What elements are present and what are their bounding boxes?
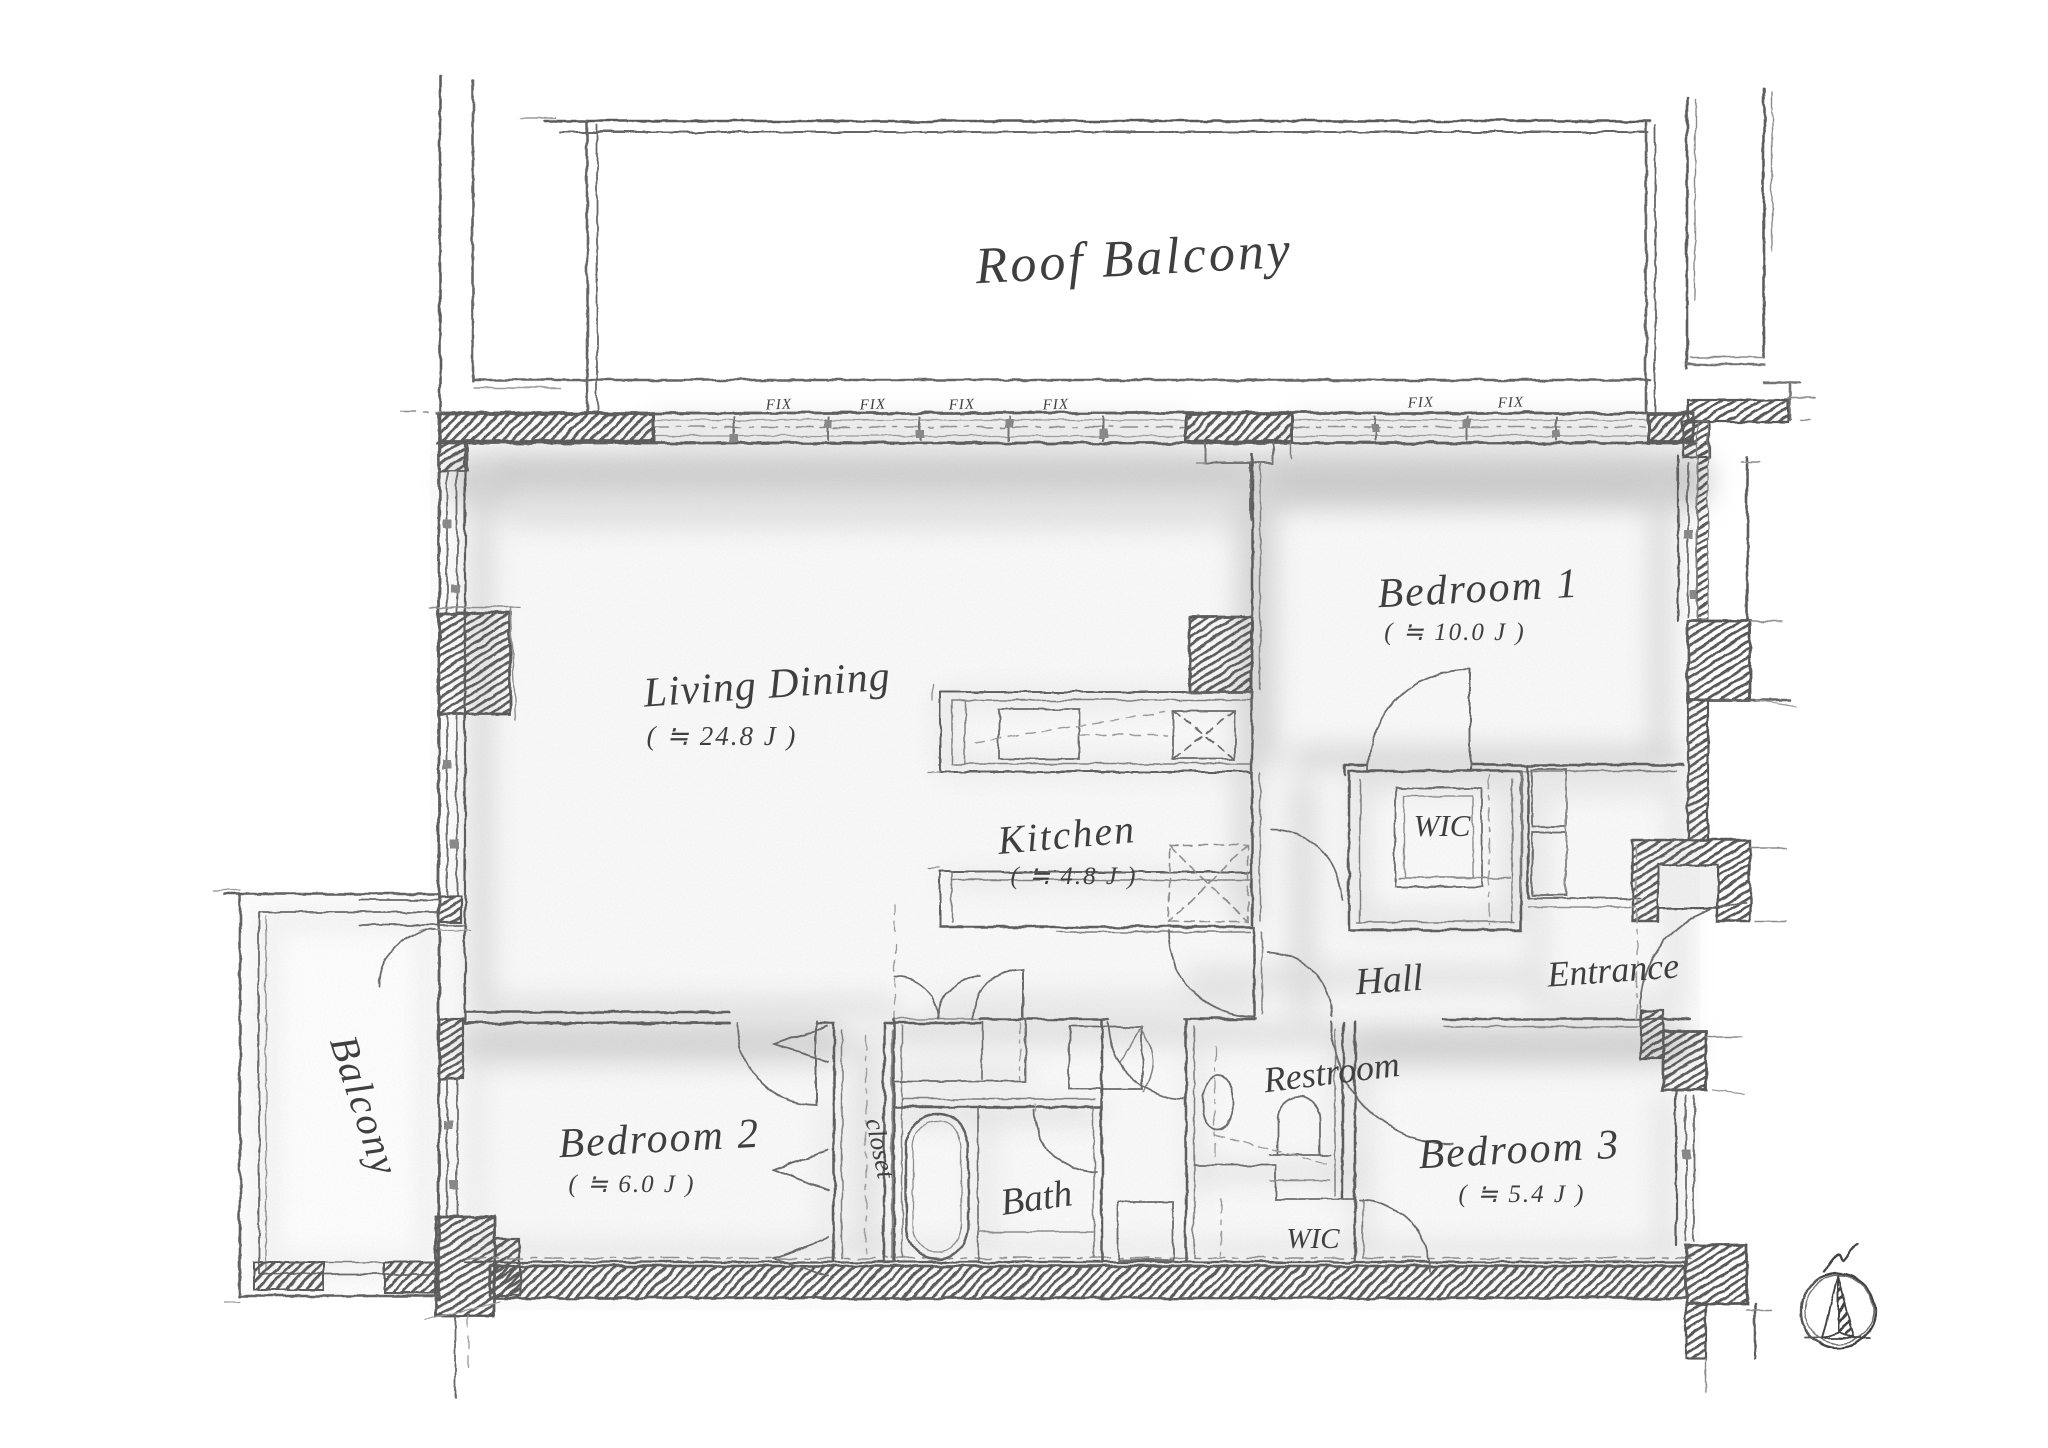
svg-text:Hall: Hall <box>1353 957 1424 1004</box>
svg-text:FIX: FIX <box>947 397 975 414</box>
svg-text:FIX: FIX <box>1496 395 1524 412</box>
svg-text:( ≒ 6.0 J ): ( ≒ 6.0 J ) <box>569 1171 696 1198</box>
svg-text:WIC: WIC <box>1286 1223 1340 1255</box>
svg-text:WIC: WIC <box>1414 808 1471 843</box>
svg-text:( ≒ 10.0 J ): ( ≒ 10.0 J ) <box>1384 619 1525 646</box>
svg-text:( ≒ 4.8 J ): ( ≒ 4.8 J ) <box>1011 863 1138 890</box>
svg-text:FIX: FIX <box>764 397 792 414</box>
svg-text:FIX: FIX <box>1406 395 1434 412</box>
svg-text:( ≒ 24.8 J ): ( ≒ 24.8 J ) <box>647 721 798 751</box>
svg-text:FIX: FIX <box>1041 397 1069 414</box>
svg-text:FIX: FIX <box>858 397 886 414</box>
svg-text:( ≒ 5.4 J ): ( ≒ 5.4 J ) <box>1459 1181 1586 1208</box>
